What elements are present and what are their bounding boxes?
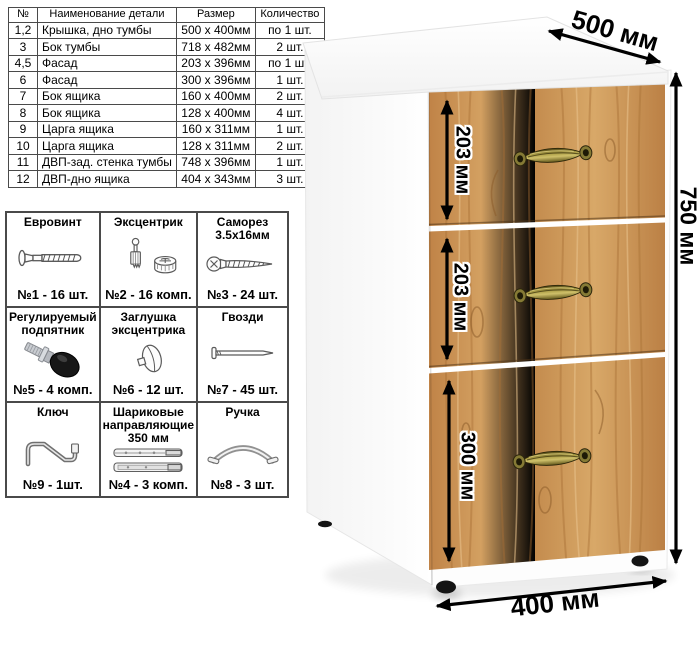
dimension-label-drawer3: 300 мм bbox=[456, 432, 479, 501]
cabinet-side-panel bbox=[305, 48, 432, 585]
dimension-label-drawer2: 203 мм bbox=[449, 263, 472, 332]
dimension-label-drawer1: 203 мм bbox=[451, 126, 474, 195]
assembly-instruction-sheet: №Наименование деталиРазмерКоличество1,2К… bbox=[0, 0, 700, 648]
cabinet-illustration bbox=[0, 0, 700, 648]
dimension-label-height: 750 мм bbox=[675, 187, 700, 266]
